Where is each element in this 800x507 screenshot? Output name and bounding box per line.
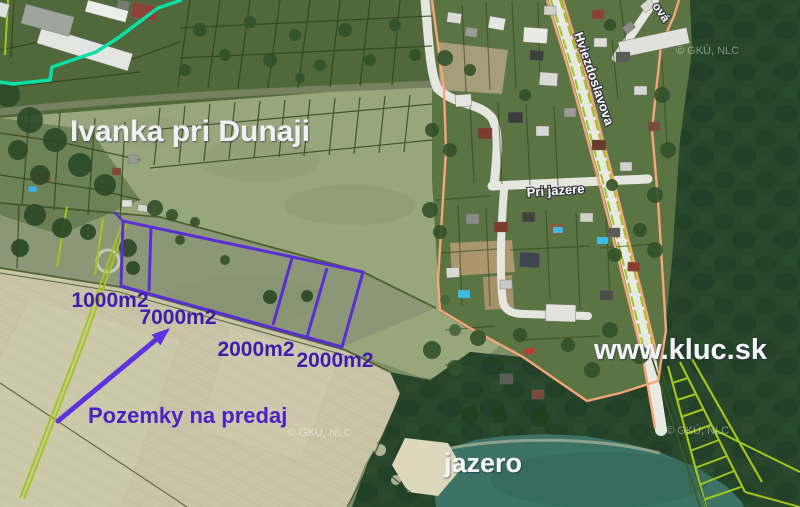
plot-area-label: 1000m2 (71, 289, 148, 312)
plot-area-label: 2000m2 (217, 338, 294, 361)
watermark: © GKÚ, NLC (666, 424, 729, 437)
satellite-map: Ivanka pri Dunaji jazero www.kluc.sk Hvi… (0, 0, 800, 507)
plot-area-label: 2000m2 (296, 349, 373, 372)
map-surface[interactable]: Ivanka pri Dunaji jazero www.kluc.sk Hvi… (0, 0, 800, 507)
website-label: www.kluc.sk (593, 334, 768, 366)
plot-area-label: 7000m2 (139, 306, 216, 329)
watermark: © GKÚ, NLC (676, 44, 739, 57)
town-label: Ivanka pri Dunaji (70, 115, 310, 148)
promo-label: Pozemky na predaj (88, 403, 287, 428)
lake-label: jazero (443, 448, 522, 478)
plot-divider (149, 227, 151, 291)
watermark: © GKÚ, NLC (288, 426, 351, 439)
